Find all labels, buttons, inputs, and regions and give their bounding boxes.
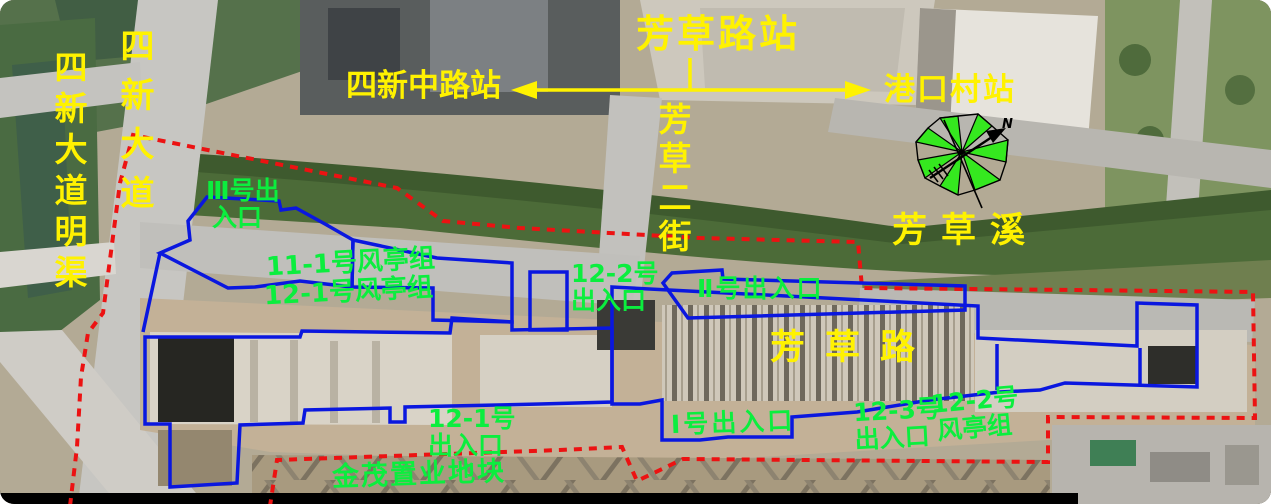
north-label: N [1002, 117, 1013, 132]
east-pit [1148, 346, 1196, 384]
east-concrete [975, 330, 1247, 412]
aerial-map-canvas: N [0, 0, 1271, 504]
photo-edge-bar [0, 493, 1078, 504]
fangcao-road-station-site-map: N 芳草路站 四新中路站 港口村站 四新大道 四新大道明渠 芳草二街 芳草溪 芳… [0, 0, 1271, 504]
building-roof-dark [328, 8, 400, 80]
center-concrete [480, 335, 612, 407]
west-excavation-pit [158, 338, 234, 422]
plaza-steps [700, 8, 905, 92]
center-pit [597, 300, 655, 350]
building-roof [430, 0, 548, 92]
east-station-box-beams [662, 305, 974, 401]
aerial-photo-background [0, 0, 1271, 504]
